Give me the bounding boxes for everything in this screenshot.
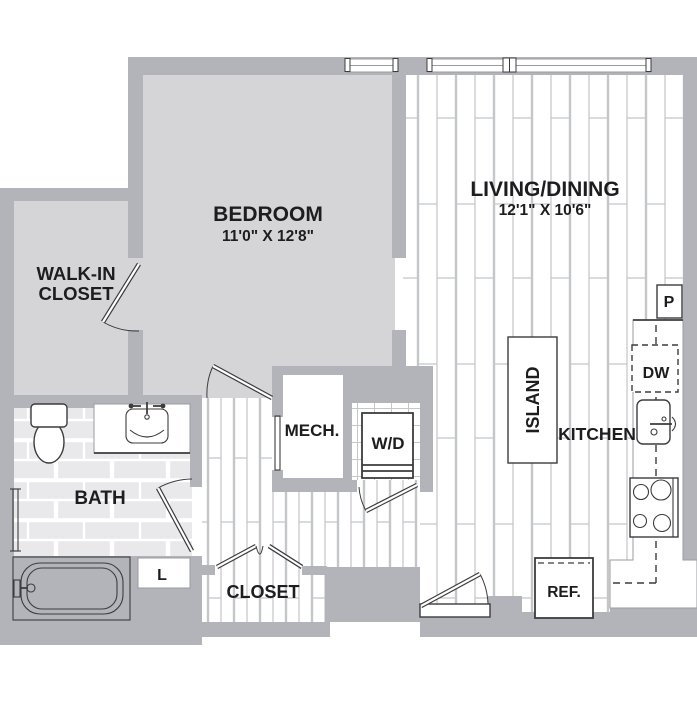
bedroom-label: BEDROOM [213, 203, 323, 226]
living-window [427, 58, 651, 72]
refrigerator-label: REF. [547, 584, 581, 601]
entry-threshold [420, 604, 490, 617]
mech-door [275, 416, 280, 470]
pantry-label: P [664, 294, 675, 311]
mech-label: MECH. [285, 421, 340, 440]
toilet-icon [31, 404, 67, 463]
linen-label: L [157, 567, 167, 584]
wd-label: W/D [371, 434, 404, 453]
island-label: ISLAND [523, 367, 543, 434]
closet-label: CLOSET [226, 582, 299, 602]
bedroom-window [345, 59, 398, 73]
walk-in-closet-label-line1: WALK-IN [36, 263, 115, 284]
kitchen-sink-icon [637, 400, 676, 444]
floor-plan-drawing: WALK-IN CLOSET BEDROOM 11'0" X 12'8" LIV… [0, 0, 697, 697]
living-dining-dims: 12'1" X 10'6" [499, 202, 592, 219]
vanity-sink-icon [94, 402, 190, 453]
floor-plan: WALK-IN CLOSET BEDROOM 11'0" X 12'8" LIV… [0, 0, 697, 697]
walk-in-closet-label-line2: CLOSET [38, 283, 114, 304]
corridor-floor [202, 480, 420, 568]
stove-icon [630, 478, 678, 537]
bath-label: BATH [74, 488, 125, 509]
bedroom-dims: 11'0" X 12'8" [222, 228, 314, 245]
dishwasher-label: DW [643, 365, 671, 382]
living-dining-label: LIVING/DINING [470, 178, 619, 201]
kitchen-label: KITCHEN [558, 424, 636, 444]
